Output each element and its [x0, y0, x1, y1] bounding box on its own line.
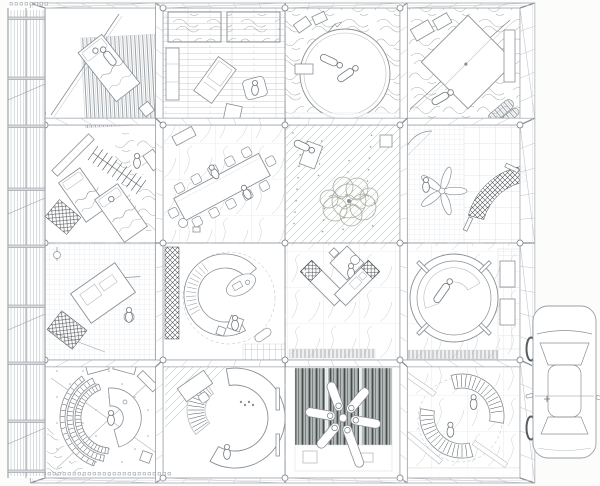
plan-perspective-svg: [0, 0, 600, 486]
car-top-view: [526, 306, 600, 458]
architectural-drawing: One-point perspective plan drawing: sixt…: [0, 0, 600, 486]
louvre-facade: [8, 8, 45, 478]
room-r4c3-futon-star: [295, 368, 392, 471]
